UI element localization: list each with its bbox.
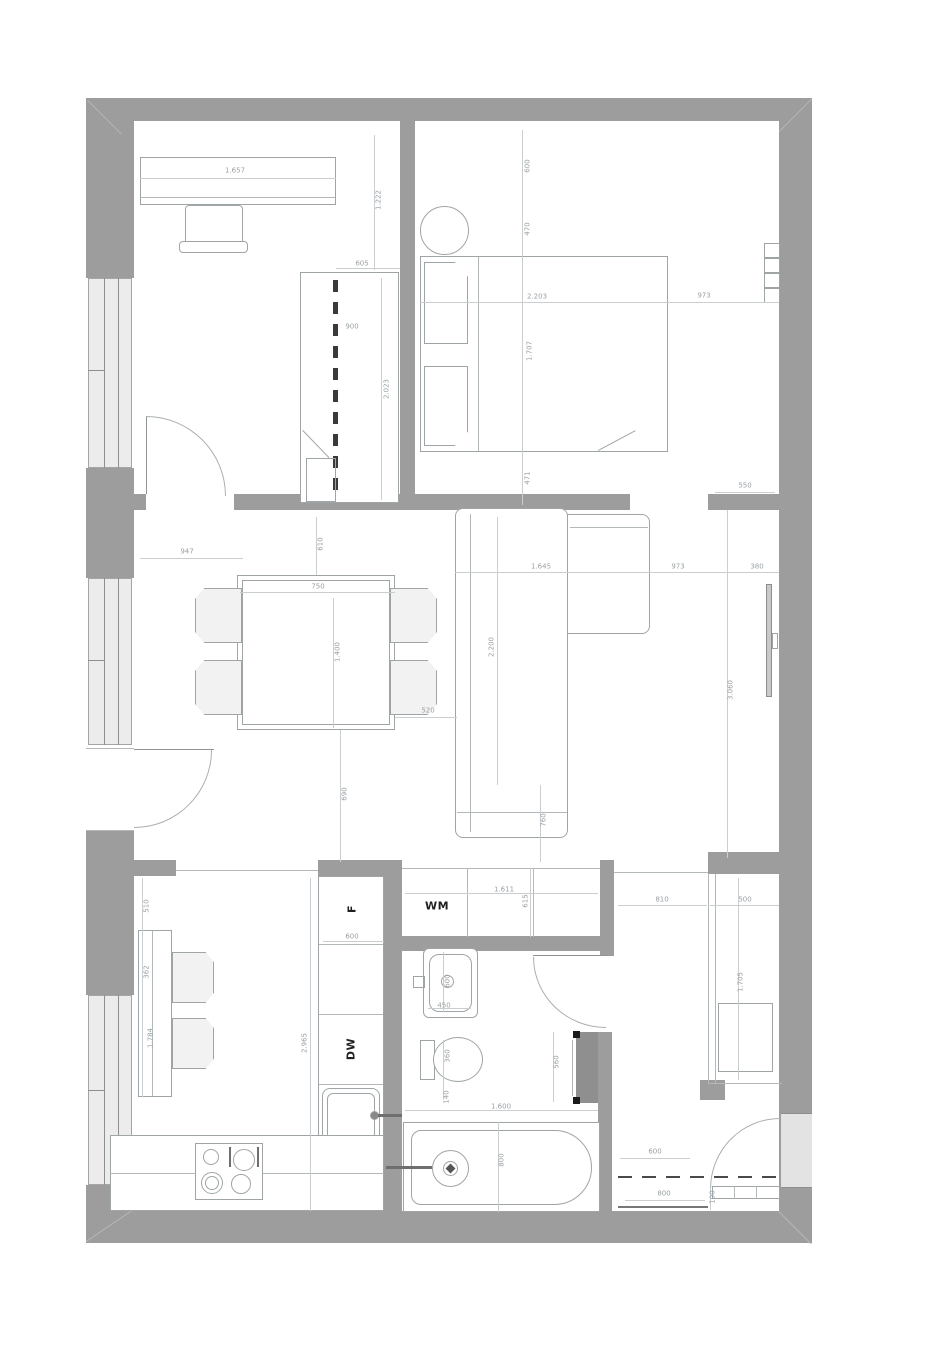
threshold-line bbox=[618, 1206, 708, 1208]
dimension-line bbox=[336, 268, 400, 269]
wall-shelf-cell bbox=[764, 288, 780, 303]
dimension-line bbox=[620, 1158, 690, 1159]
dimension-line bbox=[240, 592, 395, 593]
dimension-text: 140 bbox=[444, 1090, 451, 1103]
dimension-text: 471 bbox=[525, 471, 532, 484]
dimension-text: 2.965 bbox=[302, 1033, 309, 1053]
dimension-text: 1.705 bbox=[738, 972, 745, 992]
dimension-text: 800 bbox=[657, 1191, 670, 1198]
dimension-text: 947 bbox=[180, 549, 193, 556]
wall-bath-hall bbox=[598, 1032, 612, 1211]
wall-segment bbox=[134, 494, 146, 510]
dimension-line bbox=[310, 878, 311, 1211]
dimension-text: 800 bbox=[499, 1153, 506, 1166]
wall-shelf-cell bbox=[764, 243, 780, 258]
wall-office-bedroom bbox=[400, 121, 415, 503]
washbasin-tap bbox=[413, 976, 425, 988]
window-mullion bbox=[88, 370, 104, 371]
dimension-line bbox=[498, 1122, 499, 1212]
wall-segment bbox=[600, 860, 614, 956]
dimension-text: 605 bbox=[355, 261, 368, 268]
wall-left-segment bbox=[86, 830, 134, 995]
counter-divider bbox=[319, 1084, 383, 1085]
door-swing-arc bbox=[533, 957, 606, 1028]
counter-divider bbox=[319, 944, 383, 945]
dimension-line bbox=[710, 905, 779, 906]
wall-segment bbox=[134, 860, 176, 876]
dimension-text: 360 bbox=[445, 1049, 452, 1062]
window bbox=[88, 278, 132, 468]
dining-chair bbox=[390, 588, 437, 643]
dimension-text: 760 bbox=[541, 813, 548, 826]
water-supply-line bbox=[386, 1166, 432, 1169]
dimension-text: 450 bbox=[437, 1003, 450, 1010]
desk-chair-back bbox=[179, 241, 248, 253]
opening-edge bbox=[86, 830, 134, 831]
opening-edge bbox=[86, 748, 134, 749]
closet-frame-line bbox=[708, 1083, 782, 1084]
dimension-text: 362 bbox=[144, 965, 151, 978]
burner bbox=[203, 1149, 219, 1165]
towel-rail-line bbox=[572, 1040, 573, 1096]
kitchen-chair bbox=[172, 952, 214, 1003]
wall-shelf-cell bbox=[764, 258, 780, 273]
dimension-text: 600 bbox=[525, 159, 532, 172]
burner-bracket bbox=[229, 1147, 231, 1167]
pillow bbox=[424, 262, 468, 344]
dimension-line bbox=[140, 558, 243, 559]
wall-left-segment bbox=[86, 98, 134, 278]
opening-edge bbox=[781, 1113, 812, 1114]
dimension-text: 1.400 bbox=[335, 642, 342, 662]
dimension-line bbox=[497, 517, 498, 785]
dimension-text: 610 bbox=[318, 537, 325, 550]
dimension-text: 973 bbox=[671, 564, 684, 571]
counter-divider bbox=[319, 1014, 383, 1015]
wardrobe-inner-box bbox=[306, 458, 336, 502]
dining-table-inner bbox=[242, 580, 390, 725]
dimension-text: 380 bbox=[750, 564, 763, 571]
niche-divider bbox=[467, 868, 468, 937]
opening-edge bbox=[614, 872, 708, 873]
dimension-line bbox=[625, 1200, 705, 1201]
door-leaf-hatch bbox=[734, 1186, 735, 1199]
wall-right bbox=[779, 98, 812, 1243]
door-swing-arc bbox=[134, 750, 212, 828]
toilet-bowl bbox=[433, 1037, 483, 1082]
washing-machine-label: WM bbox=[425, 900, 449, 913]
dimension-line bbox=[333, 598, 334, 728]
kitchen-sink-basin bbox=[327, 1093, 375, 1140]
dimension-line bbox=[455, 572, 779, 573]
floor-plan: F DW WM bbox=[0, 0, 932, 1351]
bed-head-line bbox=[478, 257, 479, 451]
entrance-door-leaf bbox=[712, 1186, 780, 1199]
opening-edge bbox=[176, 870, 318, 871]
burner bbox=[205, 1176, 219, 1190]
dimension-text: 615 bbox=[523, 894, 530, 907]
window-frame-line bbox=[118, 278, 119, 468]
wall-bottom bbox=[86, 1211, 812, 1243]
window-mullion bbox=[88, 1090, 104, 1091]
dimension-line bbox=[618, 905, 707, 906]
dimension-line bbox=[715, 492, 775, 493]
niche-front-edge bbox=[402, 868, 600, 869]
overhead-dashed-line bbox=[618, 1176, 782, 1178]
closet-frame-line bbox=[708, 874, 709, 1084]
burner bbox=[231, 1174, 251, 1194]
door-swing-arc bbox=[710, 1118, 780, 1189]
kitchen-faucet-stem bbox=[378, 1114, 402, 1117]
desk-chair bbox=[185, 205, 243, 245]
dimension-line bbox=[140, 178, 336, 179]
dimension-text: 2.203 bbox=[527, 294, 547, 301]
dishwasher-label: DW bbox=[345, 1038, 358, 1060]
wall-closet-top bbox=[708, 852, 779, 874]
dimension-line bbox=[530, 868, 531, 937]
dimension-text: 3.060 bbox=[728, 680, 735, 700]
sofa-armrest-line bbox=[457, 812, 567, 813]
wall-segment bbox=[708, 494, 779, 510]
opening-edge bbox=[781, 1187, 812, 1188]
fridge-label: F bbox=[346, 905, 359, 913]
dimension-line bbox=[395, 717, 457, 718]
dimension-text: 510 bbox=[144, 899, 151, 912]
window bbox=[88, 578, 132, 745]
dimension-text: 1.611 bbox=[494, 887, 514, 894]
window-frame-line bbox=[104, 278, 105, 468]
sofa-body bbox=[455, 508, 568, 838]
dimension-line bbox=[420, 302, 779, 303]
dimension-text: 1.645 bbox=[531, 564, 551, 571]
dimension-text: 520 bbox=[421, 708, 434, 715]
closet-cabinet bbox=[718, 1003, 773, 1072]
sofa-chaise-line bbox=[570, 527, 648, 528]
window-frame-line bbox=[104, 578, 105, 745]
dimension-text: 750 bbox=[311, 584, 324, 591]
dimension-text: 600 bbox=[345, 934, 358, 941]
bedside-table bbox=[420, 206, 469, 255]
kitchen-chair bbox=[172, 1018, 214, 1069]
radiator bbox=[576, 1032, 598, 1103]
dining-chair bbox=[195, 660, 242, 715]
dimension-text: 560 bbox=[554, 1055, 561, 1068]
dining-chair bbox=[195, 588, 242, 643]
door-leaf bbox=[533, 955, 608, 956]
pillow bbox=[424, 366, 468, 446]
window-frame-line bbox=[118, 578, 119, 745]
dimension-text: 1.707 bbox=[527, 341, 534, 361]
sofa-backrest-line bbox=[470, 514, 471, 832]
burner-bracket bbox=[257, 1147, 259, 1167]
dimension-text: 973 bbox=[697, 293, 710, 300]
radiator-bracket bbox=[573, 1031, 580, 1038]
niche-divider bbox=[533, 868, 534, 937]
dimension-text: 500 bbox=[738, 897, 751, 904]
dimension-text: 2.200 bbox=[489, 637, 496, 657]
desk-front-edge bbox=[141, 197, 335, 198]
dimension-text: 900 bbox=[345, 324, 358, 331]
dimension-line bbox=[522, 130, 523, 505]
door-leaf-hatch bbox=[756, 1186, 757, 1199]
dimension-text: 1.657 bbox=[225, 168, 245, 175]
kitchen-table bbox=[138, 930, 172, 1097]
dimension-text: 810 bbox=[655, 897, 668, 904]
dimension-text: 470 bbox=[525, 222, 532, 235]
wall-top bbox=[86, 98, 812, 121]
wall-kitchen-bath bbox=[384, 860, 402, 1211]
dimension-text: 1.222 bbox=[376, 190, 383, 210]
wall-left-segment bbox=[86, 468, 134, 578]
radiator-bracket bbox=[573, 1097, 580, 1104]
wall-shelf-cell bbox=[764, 273, 780, 288]
dimension-text: 100 bbox=[710, 1190, 717, 1203]
window-mullion bbox=[88, 660, 104, 661]
tv-mount-bracket bbox=[772, 633, 778, 649]
dimension-text: 600 bbox=[445, 974, 452, 987]
dimension-text: 600 bbox=[648, 1149, 661, 1156]
dimension-text: 550 bbox=[738, 483, 751, 490]
kitchen-table-line bbox=[152, 931, 153, 1096]
dimension-text: 2.023 bbox=[384, 379, 391, 399]
entrance-sidelight bbox=[781, 1113, 812, 1188]
door-swing-arc bbox=[146, 416, 226, 496]
dimension-text: 1.600 bbox=[491, 1104, 511, 1111]
wall-segment bbox=[234, 494, 630, 510]
dimension-text: 690 bbox=[342, 787, 349, 800]
dimension-text: 1.784 bbox=[148, 1028, 155, 1048]
dimension-line bbox=[323, 941, 384, 942]
window-frame-line bbox=[104, 995, 105, 1185]
burner bbox=[233, 1149, 255, 1171]
